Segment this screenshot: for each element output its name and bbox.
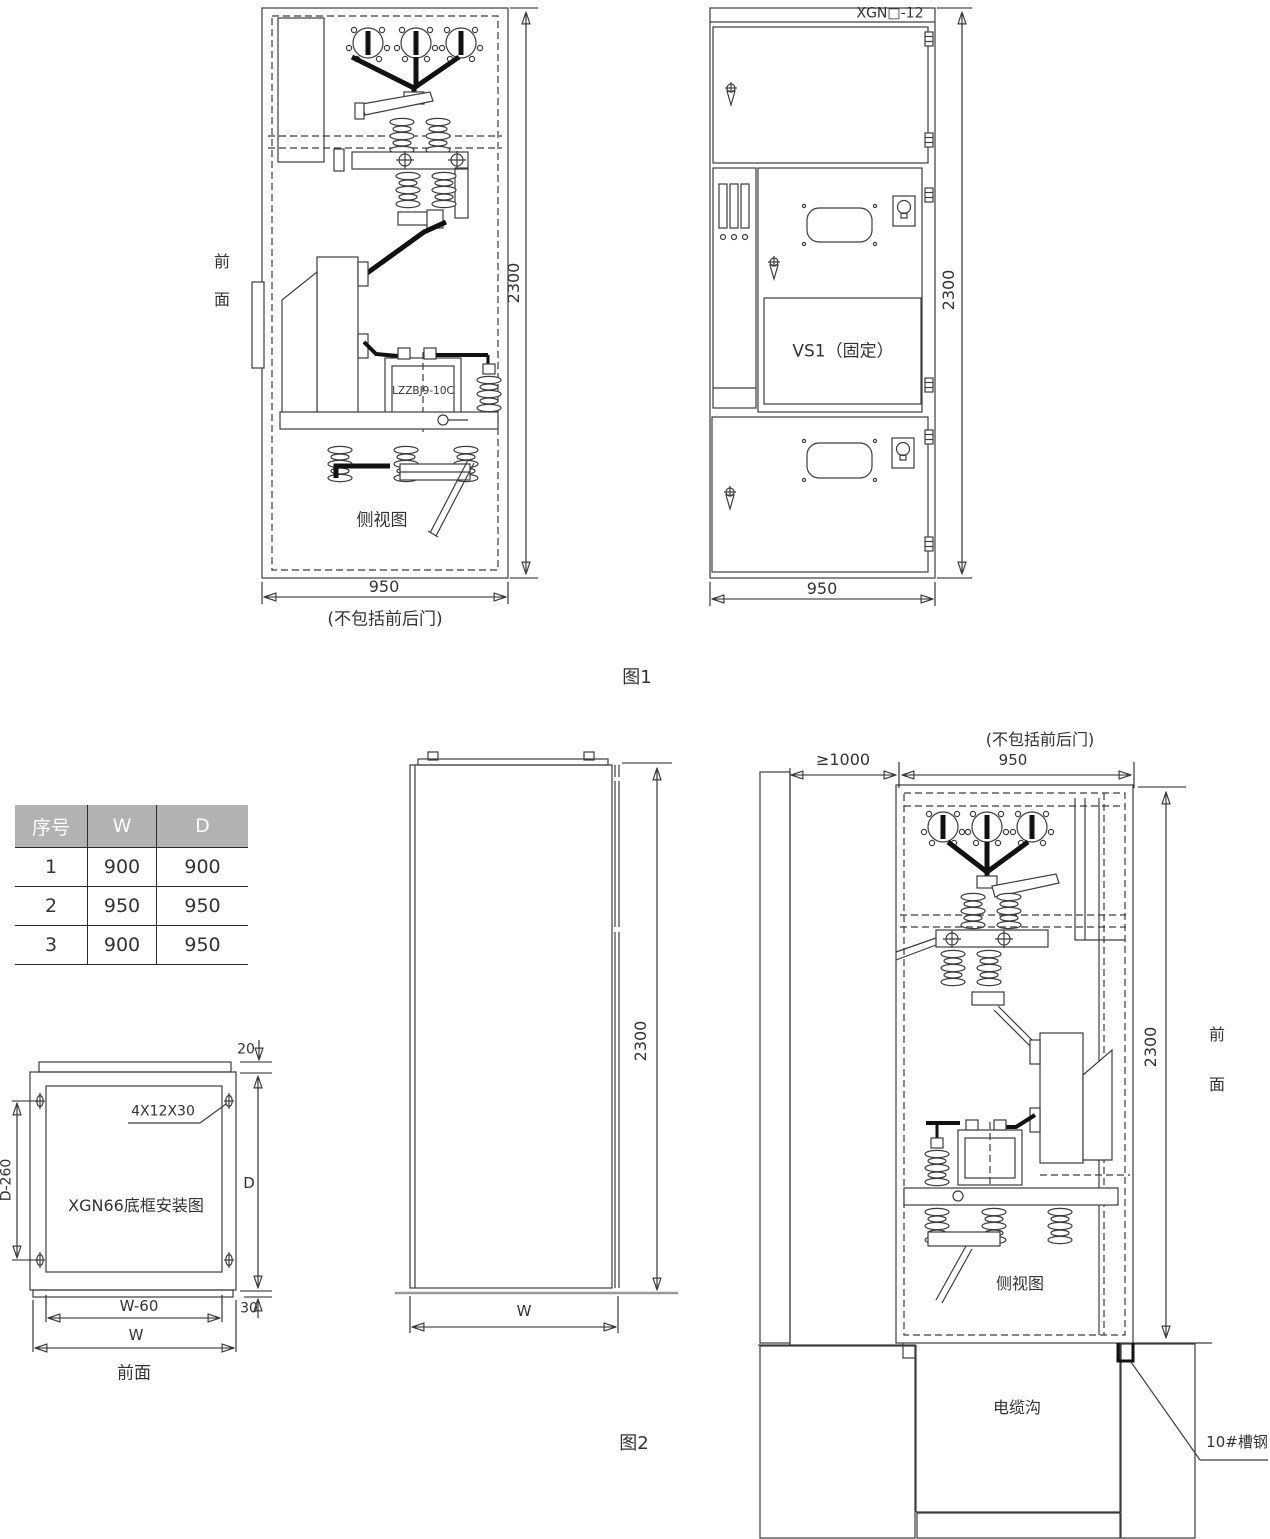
hinge-icon [925,378,933,392]
inspection-window [807,443,872,478]
wall-bushing-icon [439,27,482,61]
insulator-icon [1048,1208,1072,1243]
base-left-dim: D-260 [0,1159,15,1202]
wall-bushing-icon [965,811,1008,845]
table-cell: 3 [15,926,88,965]
operating-rod [936,1246,966,1300]
indicator-lamp-icon [892,438,914,468]
fig1-side-view-label: 侧视图 [357,512,408,531]
base-inner-width-dim: W-60 [120,1298,159,1315]
fig1-side-width-dim: 950 [369,578,400,596]
table-cell: 900 [88,926,157,965]
cabinet-model-label: XGN□-12 [856,6,923,21]
wall-bushing-icon [1010,811,1053,845]
base-frame-title: XGN66底框安装图 [68,1197,204,1215]
insulator-icon [426,118,450,153]
hinge-icon [925,188,933,202]
base-offset-dim: 30 [240,1301,258,1316]
engineering-drawing-page: 前 面 2300 950 (不包括前后门) 侧视图 LZZBJ9-10C XGN… [0,0,1270,1539]
size-table: 序号 W D 1 900 900 2 950 950 3 900 950 [15,805,248,965]
fig1-front-label-top: 前 [214,253,230,271]
inspection-window [807,208,872,242]
base-width-dim: W [129,1327,144,1344]
insulator-icon [477,376,501,411]
table-cell: 950 [88,887,157,926]
insulator-icon [390,118,414,153]
insulator-icon [432,172,456,207]
table-header-w: W [88,805,157,848]
circuit-breaker-body [1040,1033,1083,1163]
hinge-icon [925,32,933,46]
figure2-caption: 图2 [619,1434,648,1454]
table-header-d: D [157,805,248,848]
wall-bushing-icon [921,811,964,845]
install-side-view-label: 侧视图 [996,1275,1044,1293]
circuit-breaker-body [317,257,358,413]
fig2-outline-width-dim: W [517,1303,532,1320]
fig1-side-height-dim: 2300 [505,263,523,304]
fig1-front-width-dim: 950 [807,580,838,598]
install-width-note: (不包括前后门) [986,731,1095,749]
base-top-dim: 20 [237,1042,255,1057]
fig2-outline-height-dim: 2300 [632,1021,650,1062]
install-front-label-top: 前 [1209,1026,1225,1044]
door-lock-icon [725,82,737,105]
vs1-breaker-label: VS1（固定） [792,343,893,362]
ground-hatch [760,1346,915,1538]
insulator-icon [396,172,420,207]
insulator-icon [941,950,965,985]
wall-hatch [760,772,790,1343]
hinge-icon [925,430,933,444]
door-lock-icon [768,256,780,279]
table-header-no: 序号 [15,805,88,848]
hinge-icon [925,537,933,551]
table-cell: 900 [157,848,248,887]
install-front-label-bottom: 面 [1209,1076,1225,1094]
ground-hatch [917,1513,1120,1538]
ct-model-label: LZZBJ9-10C [392,386,454,398]
base-right-dim: D [243,1175,255,1192]
wall-bushing-icon [394,27,437,61]
installation-drawing [758,762,1268,1538]
anchor-bolt-icon [224,1093,234,1109]
indicator-lamp-icon [893,196,915,226]
hinge-icon [925,133,933,147]
fig1-front-height-dim: 2300 [940,270,958,311]
base-bolt-spec: 4X12X30 [131,1104,195,1119]
table-cell: 950 [157,926,248,965]
figure1-caption: 图1 [622,668,651,688]
table-cell: 1 [15,848,88,887]
channel-steel-label: 10#槽钢 [1206,1434,1268,1451]
wall-clearance-dim: ≥1000 [816,751,870,769]
table-cell: 900 [88,848,157,887]
fig1-front-view-drawing [710,8,972,606]
insulator-icon [925,1150,949,1185]
fig1-front-label-bottom: 面 [214,291,230,309]
insulator-icon [961,893,985,928]
insulator-icon [977,950,1001,985]
table-cell: 950 [157,887,248,926]
cable-trench-label: 电缆沟 [993,1399,1041,1417]
ground-hatch [1121,1344,1195,1538]
door-lock-icon [724,486,736,509]
install-height-dim: 2300 [1142,1027,1160,1068]
top-door [713,27,928,163]
install-width-dim: 950 [999,752,1028,769]
table-cell: 2 [15,887,88,926]
anchor-bolt-icon [224,1252,234,1268]
base-front-label: 前面 [117,1365,151,1384]
fig1-side-width-note: (不包括前后门) [327,611,442,630]
line-art-canvas [0,0,1270,1539]
insulator-icon [997,893,1021,928]
